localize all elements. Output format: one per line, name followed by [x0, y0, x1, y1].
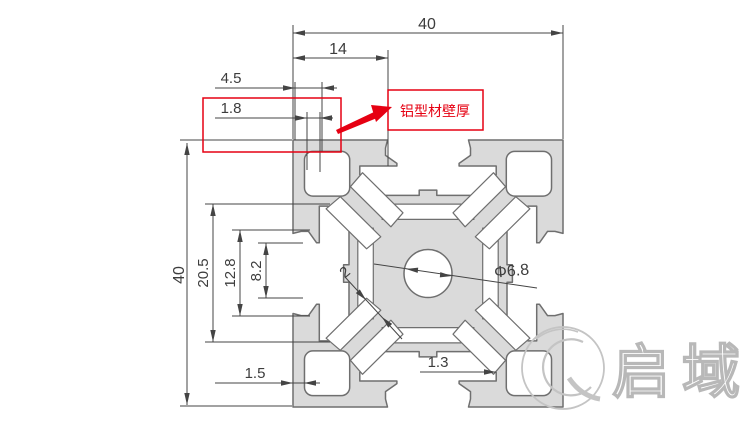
arrowhead-icon [210, 204, 215, 216]
arrowhead-icon [281, 380, 293, 385]
dimension-wall-1-8: 1.8 [221, 100, 242, 117]
watermark-q-swirl-icon [543, 339, 591, 395]
drawing-canvas: 启域 40 14 4.5 1.8 40 20.5 12.8 8.2 1.5 1.… [0, 0, 750, 422]
arrowhead-icon [293, 55, 305, 60]
arrowhead-icon [406, 268, 418, 273]
arrowhead-icon [184, 393, 189, 405]
dimension-side-height: 40 [171, 266, 188, 284]
arrowhead-icon [184, 143, 189, 155]
watermark-text: 启域 [612, 340, 750, 405]
dimension-top-width: 40 [418, 16, 436, 33]
arrowhead-icon [263, 243, 268, 255]
arrowhead-icon [322, 85, 334, 90]
red-arrow-shaft [336, 112, 377, 134]
dimension-slot-offset-14: 14 [329, 41, 347, 58]
arrowhead-icon [237, 230, 242, 242]
dimension-4-5: 4.5 [221, 70, 242, 87]
dimension-20-5: 20.5 [195, 258, 212, 287]
arrowhead-icon [237, 304, 242, 316]
dimension-1-5: 1.5 [245, 365, 266, 382]
red-arrow-icon [371, 105, 392, 122]
arrowhead-icon [263, 286, 268, 298]
dimension-hole-dia: Φ6.8 [493, 262, 529, 282]
dimension-1-3: 1.3 [428, 354, 449, 371]
arrowhead-icon [295, 115, 307, 120]
arrowhead-icon [293, 30, 305, 35]
dimension-8-2: 8.2 [248, 261, 265, 282]
arrowhead-icon [304, 380, 316, 385]
annotation-wall-thickness-text: 铝型材壁厚 [400, 103, 470, 119]
arrowhead-icon [376, 55, 388, 60]
arrowhead-icon [210, 330, 215, 342]
dimension-12-8: 12.8 [222, 258, 239, 287]
arrowhead-icon [551, 30, 563, 35]
